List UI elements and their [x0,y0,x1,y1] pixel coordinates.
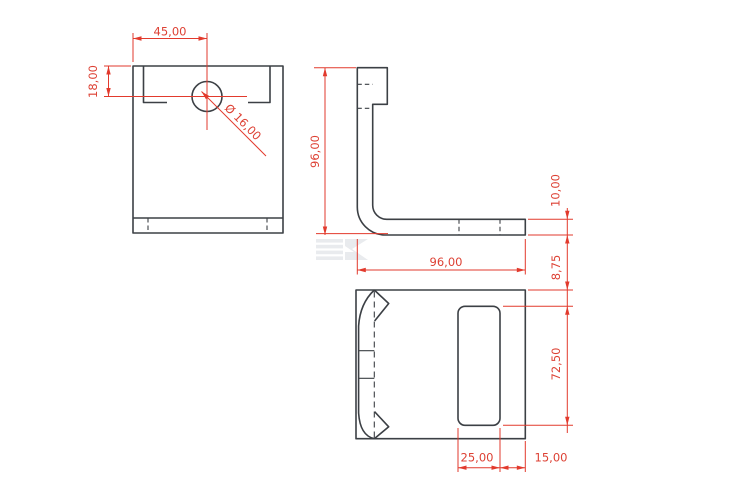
arrow-right-icon [199,36,208,40]
arrow-up-icon [565,306,569,315]
arrow-down-icon [565,282,569,291]
arrow-left-icon [458,466,467,470]
arrow-right-icon [517,268,526,272]
arrow-up-icon [565,235,569,244]
dim-label-18: 18,00 [86,65,100,98]
front-hidden-slot-edges [148,218,267,233]
side-view [357,68,525,235]
side-hidden-edges [357,84,500,235]
dim-label-45: 45,00 [154,25,187,39]
front-view-dimensions: 45,00 18,00 Ø 16,00 [86,25,266,157]
hole-projection-lines [359,351,375,379]
bend-outer-curve [359,290,375,439]
top-view [356,290,525,439]
arrow-down-icon [565,417,569,426]
front-view [133,66,283,233]
dim-label-25: 25,00 [461,451,494,465]
dim-label-10-thickness: 10,00 [549,174,563,207]
hole-leader-line [202,92,267,157]
side-view-dimensions: 96,00 96,00 10,00 [308,68,573,433]
arrow-right-icon [492,466,501,470]
dim-label-8-75: 8,75 [549,255,563,281]
dim-label-15: 15,00 [535,451,568,465]
side-profile-outline [357,68,525,235]
arrow-down-icon [106,88,110,97]
bend-corner-flaps [374,290,388,439]
arrow-right-icon [517,466,526,470]
arrow-up-icon [323,68,327,77]
dim-label-96-height: 96,00 [308,135,322,168]
dim-label-72-50: 72,50 [549,348,563,381]
technical-drawing-page: 45,00 18,00 Ø 16,00 96,00 96,00 10,00 [0,0,733,490]
front-plate-outline [133,66,283,233]
ek-logo-watermark-icon [316,239,368,260]
front-plate-edges [133,66,283,218]
dim-label-hole-diameter: Ø 16,00 [222,101,264,143]
dim-label-96-length: 96,00 [430,255,463,269]
arrow-left-icon [500,466,509,470]
slot-outline [458,306,500,425]
arrow-left-icon [133,36,142,40]
arrow-up-icon [106,66,110,75]
thickness-extension-lines [528,219,573,235]
arrow-left-icon [357,268,366,272]
l-bracket-drawing: 45,00 18,00 Ø 16,00 96,00 96,00 10,00 [0,0,733,490]
arrow-down-icon [565,211,569,220]
